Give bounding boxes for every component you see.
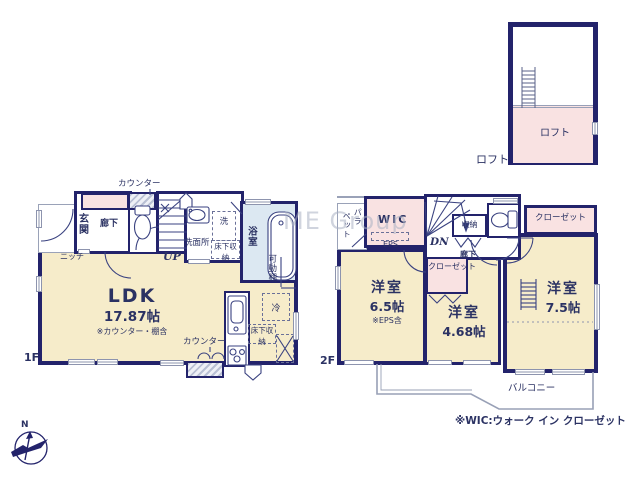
window <box>36 210 42 228</box>
underfloor-storage-kitchen: 床下収納 <box>248 324 276 344</box>
room-label-bedroom3: 洋室 <box>533 281 593 297</box>
window <box>68 359 95 365</box>
room-label-hallway-1f: 廊下 <box>100 219 118 229</box>
label-balcony: バルコニー <box>508 384 555 395</box>
label-counter-kitchen: カウンター <box>183 338 226 348</box>
genkan-closet <box>81 193 129 210</box>
window <box>594 284 600 330</box>
room-label-hallway-2f: 廊下 <box>460 250 476 259</box>
window <box>493 198 518 204</box>
window <box>344 360 374 365</box>
kitchen-door-mark <box>245 365 261 380</box>
room3-label-block: 洋室 7.5帖 <box>533 281 593 315</box>
room-label-bedroom2: 洋室 <box>430 305 498 321</box>
label-movable-shelf: 可動棚 <box>266 254 276 296</box>
window <box>515 369 545 375</box>
toilet-room-2f <box>487 203 520 238</box>
window <box>592 122 598 135</box>
underfloor-storage-label: 床下収納 <box>251 326 274 346</box>
kitchen-island <box>224 291 250 367</box>
parapet-top-line <box>337 197 367 204</box>
room-label-ldk: LDK <box>82 286 182 308</box>
window <box>335 266 341 290</box>
label-stairs-down: DN <box>430 236 449 248</box>
window <box>36 276 42 292</box>
room1-label-block: 洋室 6.5帖 ※EPS含 <box>350 280 424 326</box>
floor-label-loft: ロフト <box>476 154 509 167</box>
compass-needle <box>11 439 48 457</box>
ldk-note: ※カウンター・棚含 <box>82 327 182 336</box>
window <box>463 360 491 365</box>
bedroom2-size: 4.68帖 <box>430 325 498 339</box>
room2-label-block: 洋室 4.68帖 <box>430 305 498 339</box>
room-label-closet-room3: クローゼット <box>524 214 597 224</box>
underfloor-storage-wash: 床下収納 <box>211 240 240 259</box>
balcony-inner-line <box>381 364 472 390</box>
room-label-storage-2f: 収納 <box>452 220 487 229</box>
label-counter-entrance: カウンター <box>118 180 161 190</box>
opening <box>188 259 210 264</box>
refrigerator-label: 冷 <box>271 304 280 314</box>
room-label-genkan: 玄関 <box>76 213 88 245</box>
entrance-porch <box>38 204 77 253</box>
watermark: ME Group <box>283 208 408 236</box>
bedroom3-size: 7.5帖 <box>533 301 593 315</box>
window <box>97 359 118 365</box>
window <box>160 360 184 366</box>
room-label-loft: ロフト <box>540 128 570 140</box>
label-stairs-up: UP <box>163 251 181 264</box>
label-eps: EPS <box>383 240 398 249</box>
window <box>293 312 299 340</box>
floor-plan-canvas: 洗 床下収納 冷 床下収納 <box>0 0 640 480</box>
refrigerator-space: 冷 <box>262 293 290 321</box>
room-label-washroom: 洗面所 <box>184 239 210 249</box>
dining-counter <box>186 361 224 378</box>
compass-north-label: N <box>21 420 29 430</box>
room-label-bedroom1: 洋室 <box>350 280 424 296</box>
window <box>552 369 585 375</box>
room-label-closet-room2: クローゼット <box>428 262 466 271</box>
wic-footnote: ※WIC:ウォーク イン クローゼット <box>455 415 626 427</box>
window <box>428 360 452 365</box>
label-niche: ニッチ <box>60 252 84 261</box>
ldk-label-block: LDK 17.87帖 ※カウンター・棚含 <box>82 286 182 337</box>
floor-label-1f: 1F <box>24 352 39 365</box>
ldk-size: 17.87帖 <box>82 310 182 326</box>
bedroom1-note: ※EPS含 <box>350 316 424 325</box>
laundry-space: 洗 <box>212 211 236 241</box>
shelf-space <box>276 334 294 363</box>
floor-label-2f: 2F <box>320 355 335 368</box>
room-label-bathroom: 浴室 <box>245 226 256 266</box>
laundry-label: 洗 <box>220 217 229 227</box>
bedroom1-size: 6.5帖 <box>350 300 424 314</box>
window <box>245 199 271 205</box>
north-compass <box>11 431 48 464</box>
